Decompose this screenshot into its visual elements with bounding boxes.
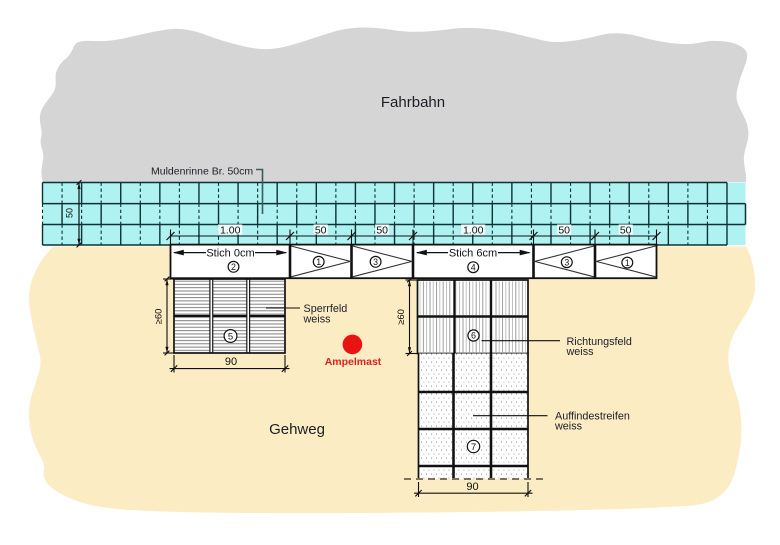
svg-text:50: 50 — [620, 225, 632, 237]
svg-text:90: 90 — [225, 356, 237, 368]
svg-text:weiss: weiss — [554, 420, 583, 432]
svg-text:≥60: ≥60 — [396, 309, 407, 325]
svg-text:Muldenrinne Br. 50cm: Muldenrinne Br. 50cm — [151, 166, 253, 178]
svg-text:90: 90 — [466, 481, 478, 493]
svg-text:2: 2 — [231, 262, 236, 272]
svg-text:50: 50 — [315, 225, 327, 237]
svg-text:Stich 0cm: Stich 0cm — [206, 247, 254, 259]
svg-text:4: 4 — [471, 262, 476, 272]
svg-text:Ampelmast: Ampelmast — [325, 356, 382, 368]
svg-text:50: 50 — [376, 225, 388, 237]
svg-text:3: 3 — [564, 257, 569, 267]
svg-text:5: 5 — [228, 331, 233, 342]
svg-text:Stich 6cm: Stich 6cm — [449, 247, 497, 259]
svg-text:weiss: weiss — [303, 314, 332, 326]
svg-text:1: 1 — [316, 257, 321, 267]
svg-text:1.00: 1.00 — [463, 225, 484, 237]
svg-text:6: 6 — [471, 331, 476, 341]
svg-text:1.00: 1.00 — [220, 225, 241, 237]
svg-text:7: 7 — [471, 442, 476, 453]
svg-text:≥60: ≥60 — [154, 309, 165, 325]
svg-text:50: 50 — [558, 225, 570, 237]
svg-text:1: 1 — [625, 258, 630, 268]
svg-text:50: 50 — [65, 208, 75, 218]
svg-text:3: 3 — [373, 257, 378, 267]
svg-text:Fahrbahn: Fahrbahn — [381, 94, 445, 111]
svg-text:weiss: weiss — [566, 346, 595, 358]
svg-text:Gehweg: Gehweg — [269, 421, 325, 438]
